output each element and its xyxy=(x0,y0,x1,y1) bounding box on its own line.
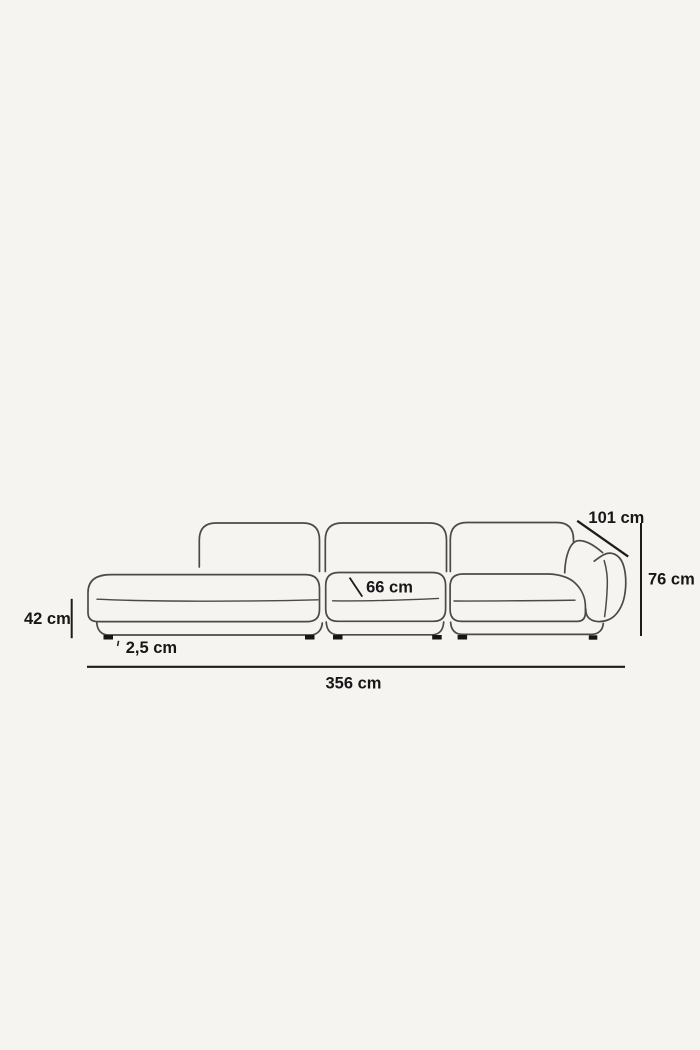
svg-text:2,5 cm: 2,5 cm xyxy=(126,639,177,657)
svg-text:76 cm: 76 cm xyxy=(648,570,695,588)
svg-text:42 cm: 42 cm xyxy=(24,610,71,628)
svg-text:66 cm: 66 cm xyxy=(366,578,413,596)
svg-text:356 cm: 356 cm xyxy=(326,674,382,692)
svg-text:101 cm: 101 cm xyxy=(588,509,644,527)
